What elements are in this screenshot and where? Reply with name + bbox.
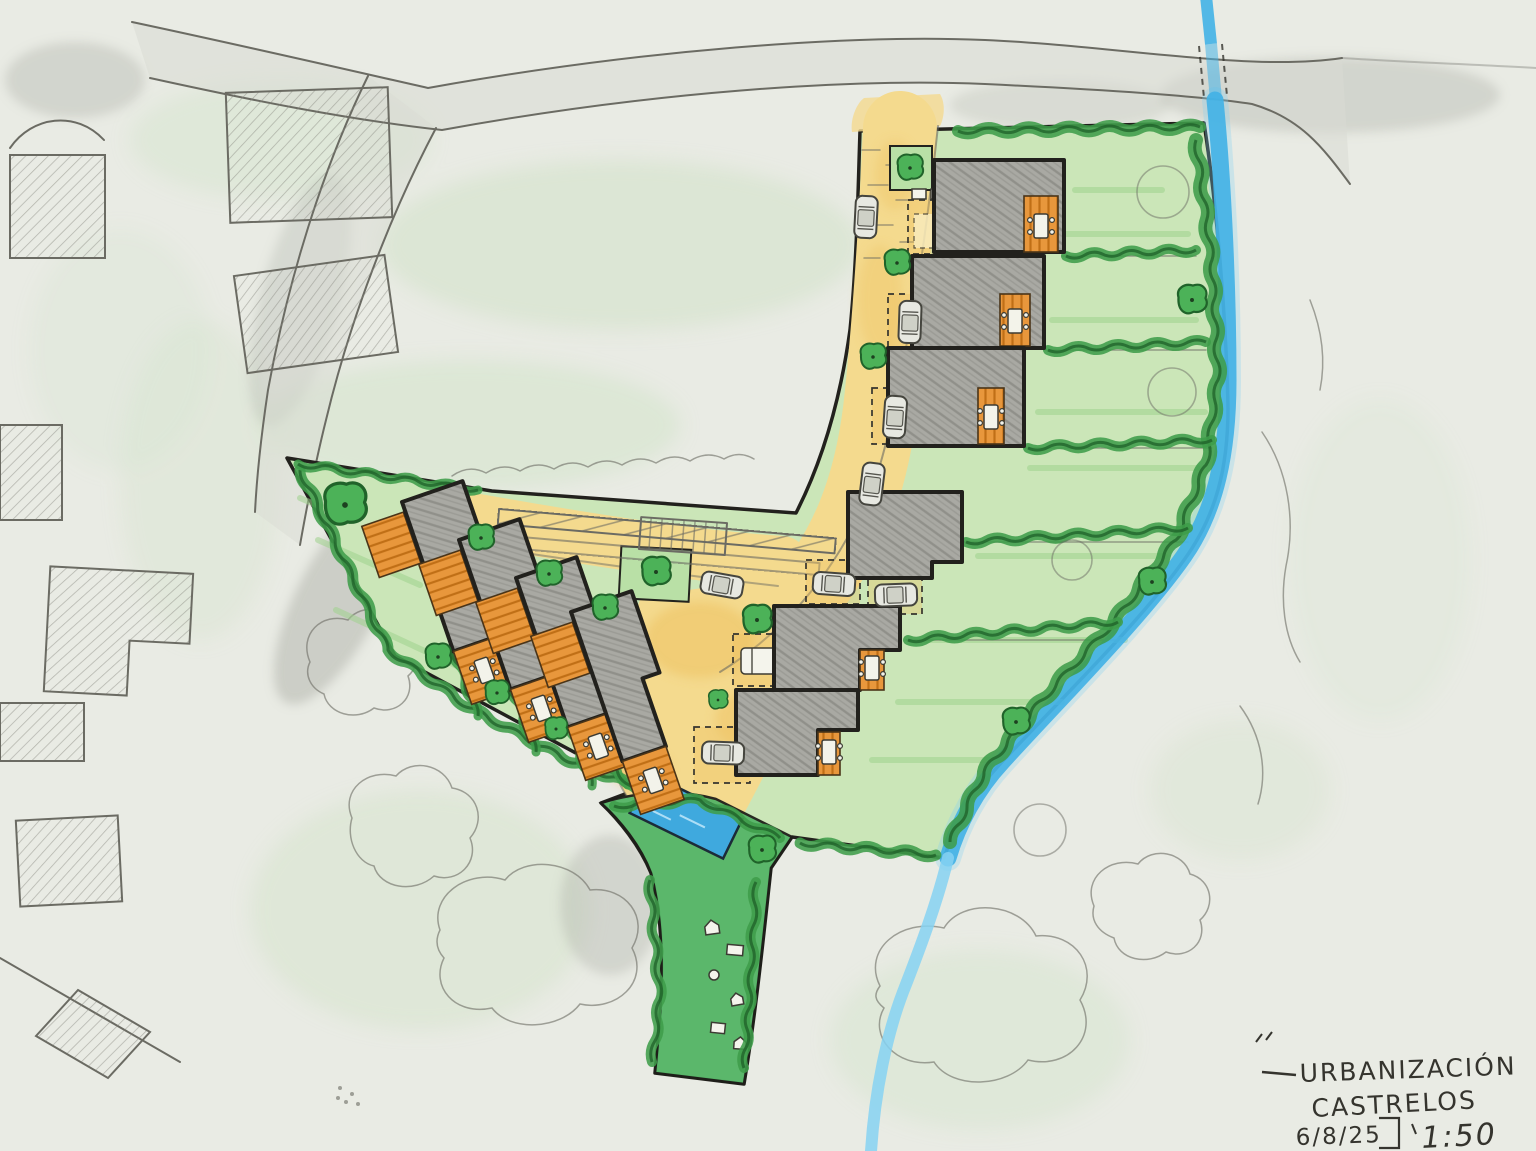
existing-building: [226, 87, 392, 223]
bin: [912, 189, 926, 199]
car-icon: [859, 462, 886, 506]
site-plan-canvas: URBANIZACIÓN CASTRELOS 6/8/25 1:50: [0, 0, 1536, 1151]
wash: [250, 790, 590, 1030]
car-icon: [875, 583, 918, 606]
existing-building: [0, 425, 62, 520]
existing-building: [0, 703, 84, 761]
furniture-icon: [709, 970, 719, 980]
wash: [1150, 720, 1330, 860]
car-icon: [812, 572, 855, 597]
existing-building: [234, 255, 398, 373]
tree-icon: [642, 557, 671, 586]
tree-icon: [426, 643, 452, 668]
tree-icon: [1003, 708, 1030, 735]
stream-under-road: [1211, 44, 1216, 100]
existing-building: [10, 155, 105, 258]
wash: [1290, 400, 1470, 720]
tree-icon: [885, 249, 911, 274]
drawing-scale: 1:50: [1421, 1117, 1498, 1151]
smudge: [5, 42, 145, 118]
tree-icon: [861, 343, 887, 368]
tree-icon: [593, 594, 619, 619]
tree-icon: [485, 680, 509, 704]
car-icon: [702, 741, 745, 764]
drawing-date: 6/8/25: [1295, 1122, 1382, 1151]
tree-icon: [709, 690, 728, 709]
tree-icon: [545, 717, 567, 739]
furniture-icon: [711, 1022, 726, 1033]
tree-icon: [1178, 285, 1207, 314]
furniture-icon: [727, 944, 744, 955]
existing-building: [16, 815, 122, 906]
tree-icon: [1139, 568, 1166, 595]
site-plan-sketch: URBANIZACIÓN CASTRELOS 6/8/25 1:50: [0, 0, 1536, 1151]
tree-icon: [325, 483, 367, 524]
tree-icon: [898, 154, 924, 179]
wash: [380, 160, 860, 330]
tree-icon: [537, 560, 563, 585]
car-icon: [898, 301, 921, 344]
car-icon: [854, 195, 878, 238]
car-icon: [883, 395, 908, 438]
tree-icon: [743, 605, 772, 634]
tree-icon: [469, 524, 495, 549]
stream-upper: [1206, 0, 1211, 44]
tree-icon: [749, 836, 776, 863]
